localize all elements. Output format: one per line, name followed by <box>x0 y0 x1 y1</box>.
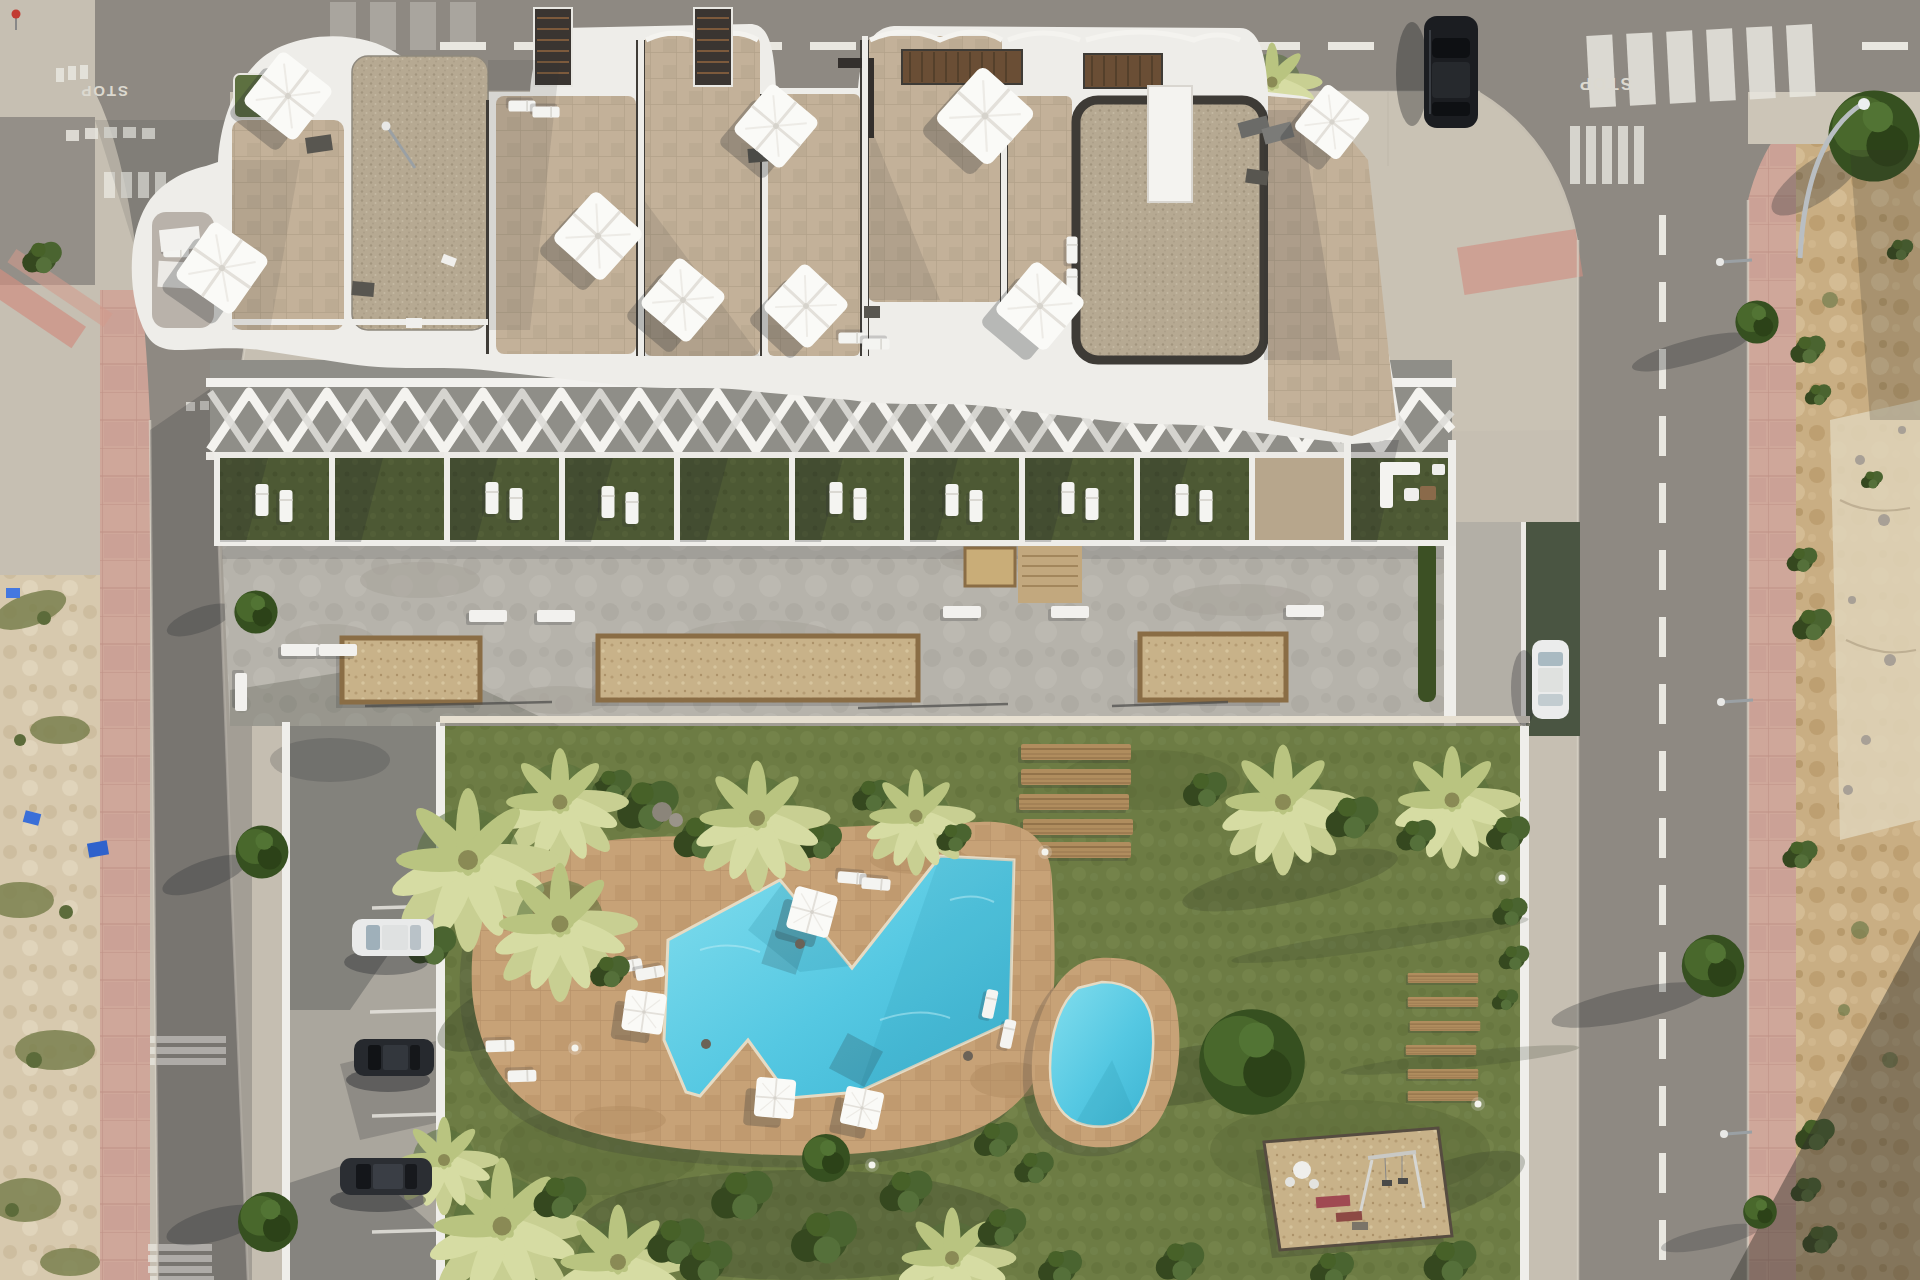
playground <box>1256 1128 1452 1258</box>
garden <box>387 716 1580 1280</box>
playground-mulch <box>1264 1128 1452 1250</box>
garden-wall-east <box>1520 726 1529 1280</box>
stop-marking-right: STOP <box>1578 74 1632 93</box>
plaza <box>222 530 1453 730</box>
play-table <box>1293 1161 1311 1179</box>
rubble-patch <box>1830 400 1920 840</box>
planter-right <box>1140 634 1286 700</box>
car-parking-dark-2 <box>330 1158 432 1212</box>
stop-marking-left: STOP <box>79 83 128 100</box>
terrace-tiled-cell <box>1249 458 1344 544</box>
aerial-render: STOP STOP <box>0 0 1920 1280</box>
terrace-access-path <box>1018 543 1082 603</box>
driveway-apron <box>1455 522 1521 736</box>
play-bench-red-2 <box>1336 1211 1363 1222</box>
pink-sidewalk-left <box>100 290 150 1280</box>
car-parking-dark-1 <box>346 1039 434 1092</box>
plaza-planters <box>336 634 1286 708</box>
planter-middle <box>598 636 918 700</box>
car-parking-white <box>344 919 434 975</box>
planter-left <box>342 638 480 702</box>
roof-white-panel <box>1148 86 1192 202</box>
car-top-road <box>1396 16 1478 128</box>
plaza-hedge <box>1418 540 1436 702</box>
small-planter <box>965 548 1015 586</box>
pink-sidewalk-right <box>1748 92 1796 1280</box>
car-driveway <box>1511 640 1569 726</box>
dirt-strip-left <box>0 575 100 1280</box>
scene-canvas: STOP STOP <box>0 0 1920 1280</box>
garden-retaining-wall <box>440 716 1530 723</box>
blue-bin-3 <box>6 588 20 598</box>
